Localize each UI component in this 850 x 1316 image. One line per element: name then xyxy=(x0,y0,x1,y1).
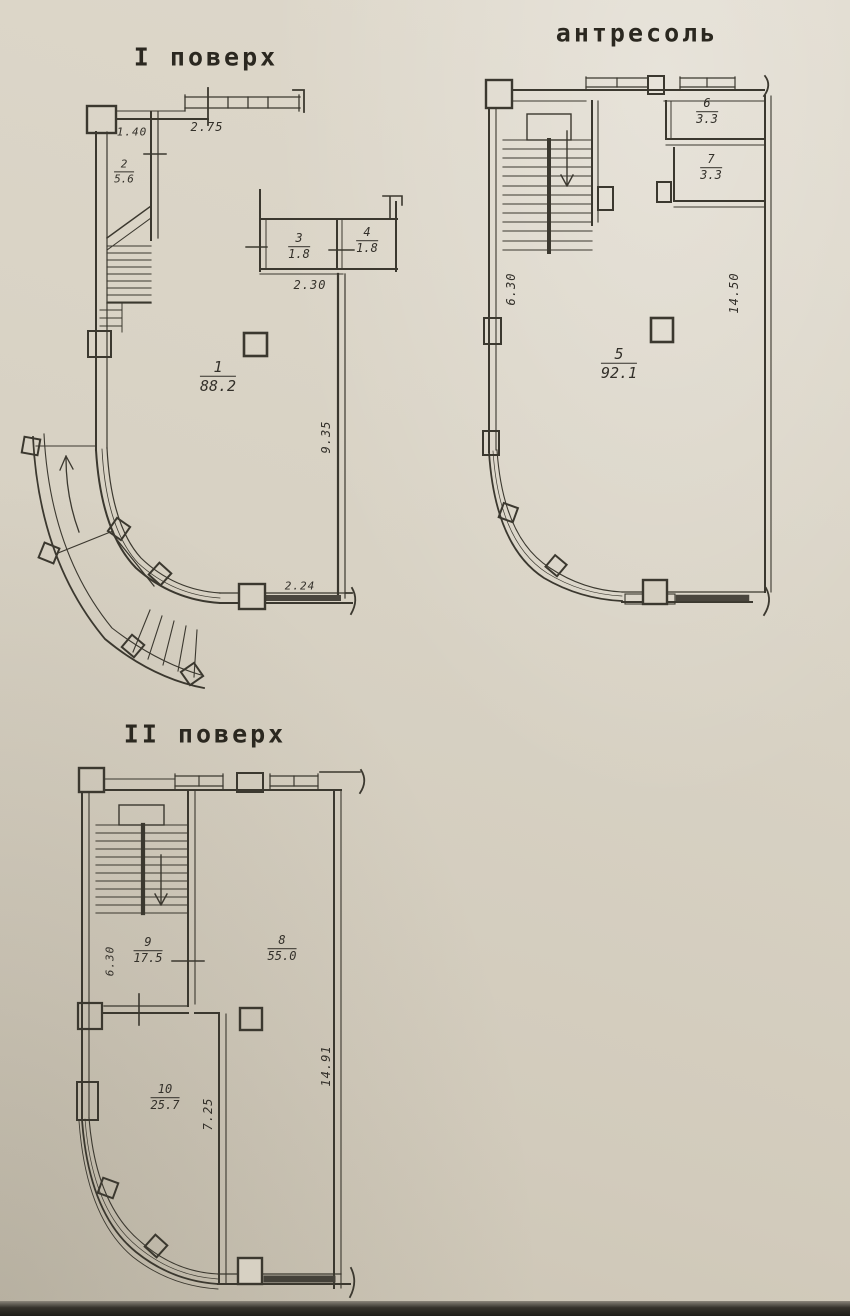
plan-title-mezzanine: антресоль xyxy=(556,19,718,48)
room-area: 3.3 xyxy=(700,168,722,183)
dim-label: 2.30 xyxy=(294,278,327,292)
room-number: 7 xyxy=(700,153,722,168)
dim-label: 7.25 xyxy=(201,1098,215,1131)
room-label-5: 5 92.1 xyxy=(601,346,637,383)
room-area: 25.7 xyxy=(151,1098,180,1113)
room-number: 2 xyxy=(114,158,134,172)
dim-label: 1.40 xyxy=(117,126,148,139)
first-floor-rooms-3-4 xyxy=(246,190,402,274)
room-number: 8 xyxy=(268,934,297,949)
room-area: 1.8 xyxy=(356,241,378,256)
dim-label: 6.30 xyxy=(504,273,518,306)
scan-edge-shadow xyxy=(0,1301,850,1316)
first-floor-staircase xyxy=(100,112,166,332)
room-label-8: 8 55.0 xyxy=(268,934,297,964)
room-number: 5 xyxy=(601,346,637,364)
room-label-4: 4 1.8 xyxy=(356,226,378,256)
room-area: 92.1 xyxy=(601,364,637,382)
first-floor-left-wall xyxy=(87,106,116,450)
room-number: 3 xyxy=(288,232,310,247)
dim-label: 9.35 xyxy=(319,421,333,454)
room-area: 1.8 xyxy=(288,247,310,262)
room-label-6: 6 3.3 xyxy=(696,97,718,127)
plan-title-first-floor: I поверх xyxy=(134,43,278,72)
mezzanine-column xyxy=(651,318,673,342)
room-area: 17.5 xyxy=(134,951,163,966)
room-area: 88.2 xyxy=(200,377,236,395)
mezzanine-right-wall xyxy=(765,96,771,592)
dim-label: 14.50 xyxy=(727,272,741,313)
up-arrow-icon xyxy=(60,456,79,532)
room-label-1: 1 88.2 xyxy=(200,359,236,396)
plan-second-floor-drawing xyxy=(77,768,364,1297)
first-floor-exterior-colonnade xyxy=(22,434,204,688)
first-floor-column xyxy=(244,333,267,356)
mezzanine-curved-wall xyxy=(489,450,622,601)
mezzanine-left-wall xyxy=(483,108,501,455)
mezzanine-staircase xyxy=(503,101,613,252)
mezzanine-top-wall xyxy=(486,76,768,108)
room-label-3: 3 1.8 xyxy=(288,232,310,262)
dim-label: 6.30 xyxy=(104,946,117,977)
room-number: 9 xyxy=(134,936,163,951)
floor-plan-linework xyxy=(0,0,850,1316)
second-floor-right-wall xyxy=(334,790,341,1288)
mezzanine-bottom-wall xyxy=(622,580,769,615)
first-floor-central-wall xyxy=(338,274,345,598)
room-label-9: 9 17.5 xyxy=(134,936,163,966)
room-label-10: 10 25.7 xyxy=(151,1083,180,1113)
second-floor-interior-walls xyxy=(104,961,262,1284)
second-floor-top-wall xyxy=(79,768,364,793)
room-area: 3.3 xyxy=(696,112,718,127)
dim-label: 2.24 xyxy=(285,580,316,593)
dim-label: 14.91 xyxy=(319,1045,333,1086)
floor-plan-scan: I поверх 1.40 2.75 2 5.6 3 1.8 4 1.8 2.3… xyxy=(0,0,850,1316)
room-label-2: 2 5.6 xyxy=(114,158,134,185)
room-number: 4 xyxy=(356,226,378,241)
plan-title-second-floor: II поверх xyxy=(124,720,286,749)
dim-label: 2.75 xyxy=(191,120,224,134)
room-area: 55.0 xyxy=(268,949,297,964)
room-area: 5.6 xyxy=(114,172,134,186)
down-arrow-icon xyxy=(155,855,167,905)
room-number: 6 xyxy=(696,97,718,112)
first-floor-curved-wall xyxy=(96,448,220,603)
room-number: 10 xyxy=(151,1083,180,1098)
second-floor-curved-wall xyxy=(79,1118,218,1289)
room-label-7: 7 3.3 xyxy=(700,153,722,183)
room-number: 1 xyxy=(200,359,236,377)
